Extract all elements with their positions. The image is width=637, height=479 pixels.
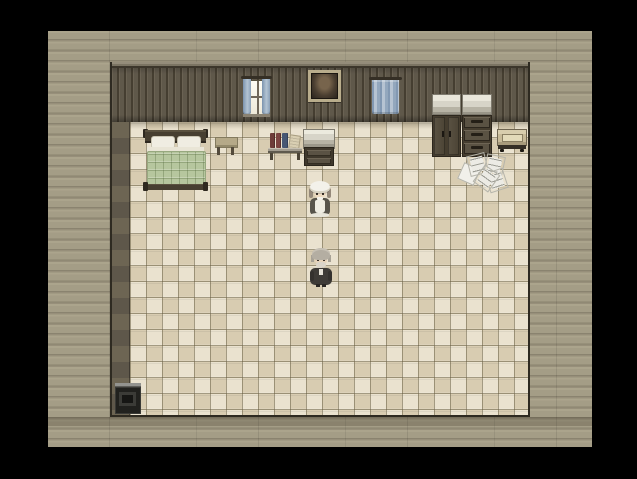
oldman-hair [312,248,330,260]
bed-post [203,182,208,191]
dresser-body [462,115,492,157]
side-table-leg [217,147,220,155]
shelf-leg [270,153,273,160]
window-left [243,76,270,117]
window-right [371,77,400,115]
portrait-frame [308,70,341,102]
dresser-drawer [464,130,490,141]
wardrobe [432,94,461,157]
portrait-art [312,74,337,98]
letterbox: { "window": { "kind": "retro-rpg-game-wi… [0,0,637,479]
stove [115,383,141,414]
curtain-rod [369,77,402,80]
bed-footboard [145,184,206,190]
curtain-left [243,78,251,115]
shelf-leg [297,153,300,160]
dresser [462,94,492,157]
radio-wheel [520,149,524,152]
drawer-handle [471,120,483,123]
curtain-rod [241,76,272,79]
wall-top-trim [112,62,528,68]
maid-hem [311,213,329,217]
curtain-right [262,78,270,115]
closed-curtain [372,79,399,114]
oldman-arm [328,271,332,281]
book-blue [282,133,288,148]
counter-drawer [307,150,331,156]
oldman-foot [322,284,326,287]
maid-bonnet [310,181,330,193]
wardrobe-top [432,94,461,115]
room [110,62,530,417]
counter-base [304,147,334,166]
wardrobe-door [448,117,459,155]
oldman-foot [316,284,320,287]
door-handle [449,131,451,137]
window-sill [243,114,270,117]
scattered-papers [460,154,508,196]
door-handle [442,131,444,137]
drawer-handle [471,133,483,136]
bed-quilt [147,151,206,187]
radio-body [497,129,527,146]
npc-old-man[interactable] [307,247,335,288]
drawer-handle [471,146,483,149]
stove-door-inner [122,395,133,403]
side-table-leg [231,147,234,155]
bed-post [143,182,148,191]
wardrobe-door [434,117,445,155]
dresser-drawer [464,117,490,128]
oldman-shirt [319,269,323,275]
counter-top [303,129,335,149]
radio-panel [502,134,523,142]
wardrobe-body [432,115,461,157]
book-shelf [268,132,302,160]
dresser-top [462,94,492,115]
radio-wheel [500,149,504,152]
side-table [215,137,236,156]
oldman-arm [310,271,314,281]
room-drop-shadow [48,417,592,426]
counter-drawer [307,158,331,164]
counter [303,129,335,166]
npc-maid[interactable] [306,181,334,219]
left-wall-shadow [112,122,130,415]
radio-table [497,129,527,152]
dresser-drawer [464,143,490,154]
game-viewport[interactable] [48,31,592,447]
bed [145,130,206,190]
book-red [270,133,275,148]
maid-apron [315,200,325,213]
book-red [276,133,281,148]
